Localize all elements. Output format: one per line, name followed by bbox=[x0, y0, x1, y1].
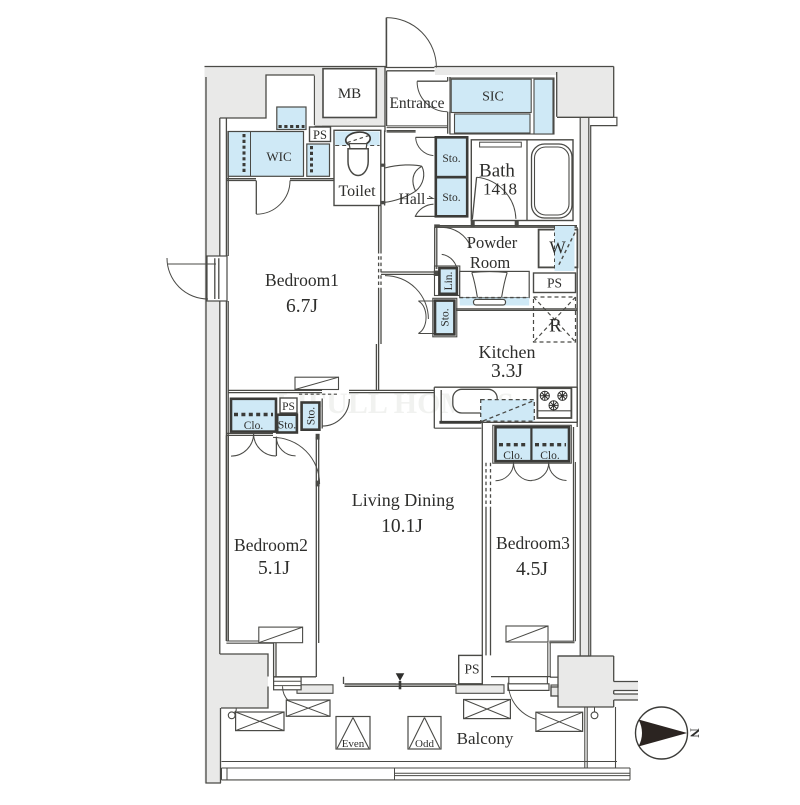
svg-text:4.5J: 4.5J bbox=[516, 559, 548, 580]
svg-text:1418: 1418 bbox=[483, 180, 517, 199]
svg-text:Sto.: Sto. bbox=[306, 407, 318, 425]
svg-text:Bath: Bath bbox=[479, 161, 515, 182]
svg-text:Clo.: Clo. bbox=[503, 450, 523, 462]
svg-text:Balcony: Balcony bbox=[457, 729, 514, 748]
svg-text:Entrance: Entrance bbox=[389, 95, 444, 112]
svg-text:Powder: Powder bbox=[467, 233, 518, 252]
svg-text:3.3J: 3.3J bbox=[491, 361, 523, 382]
svg-text:Kitchen: Kitchen bbox=[479, 342, 536, 362]
svg-text:PS: PS bbox=[547, 276, 562, 291]
svg-text:Sto.: Sto. bbox=[440, 308, 452, 326]
svg-text:R: R bbox=[549, 316, 562, 337]
svg-text:MB: MB bbox=[338, 86, 361, 102]
svg-text:Bedroom2: Bedroom2 bbox=[234, 535, 308, 555]
svg-text:W: W bbox=[549, 238, 566, 258]
svg-text:5.1J: 5.1J bbox=[258, 558, 290, 579]
svg-text:Even: Even bbox=[342, 738, 365, 750]
svg-text:Hall: Hall bbox=[399, 191, 426, 208]
svg-text:Odd: Odd bbox=[415, 738, 434, 750]
svg-text:N: N bbox=[688, 728, 703, 738]
svg-text:WIC: WIC bbox=[266, 149, 291, 164]
svg-text:Sto.: Sto. bbox=[442, 153, 460, 165]
svg-text:Clo.: Clo. bbox=[540, 450, 560, 462]
svg-text:Bedroom3: Bedroom3 bbox=[496, 533, 570, 553]
svg-text:Living Dining: Living Dining bbox=[352, 490, 455, 510]
svg-text:Room: Room bbox=[470, 253, 511, 272]
svg-text:Lin.: Lin. bbox=[443, 271, 455, 290]
svg-text:10.1J: 10.1J bbox=[381, 516, 423, 537]
svg-text:Sto.: Sto. bbox=[278, 420, 296, 432]
svg-text:SIC: SIC bbox=[482, 90, 504, 105]
svg-text:6.7J: 6.7J bbox=[286, 296, 318, 317]
svg-text:PS: PS bbox=[313, 128, 327, 142]
svg-text:PS: PS bbox=[464, 662, 479, 677]
svg-text:Bedroom1: Bedroom1 bbox=[265, 270, 339, 290]
svg-text:PS: PS bbox=[282, 401, 295, 413]
svg-text:Toilet: Toilet bbox=[338, 183, 376, 200]
svg-text:Sto.: Sto. bbox=[442, 192, 460, 204]
svg-text:Clo.: Clo. bbox=[244, 420, 264, 432]
